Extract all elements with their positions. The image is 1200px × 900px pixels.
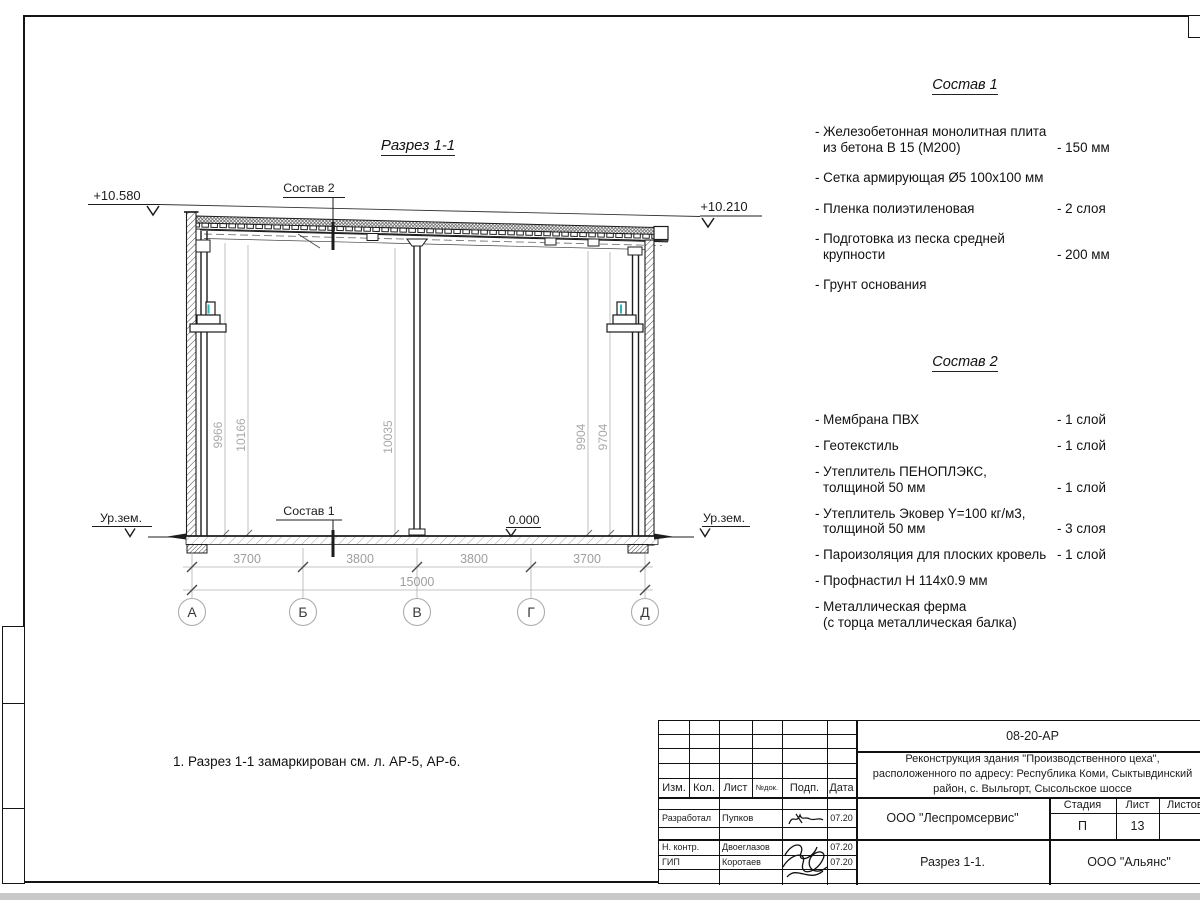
signature-razrabotal (786, 811, 826, 827)
stage-label: Стадия (1049, 797, 1116, 813)
row-role: ГИП (662, 855, 719, 869)
left-column-cap (196, 240, 210, 252)
svg-text:Ур.зем.: Ур.зем. (100, 511, 142, 525)
svg-text:Ур.зем.: Ур.зем. (703, 511, 745, 525)
col-header-ndok: №док. (752, 778, 782, 797)
row-name: Двоеглазов (722, 839, 782, 855)
row-date: 07.20 (827, 809, 856, 827)
sheet-number-label: Лист (1116, 797, 1159, 813)
drawing-title-wrap: Разрез 1-1 (378, 137, 458, 156)
dim-value: 3800 (460, 552, 488, 566)
height-dim-value: 10035 (381, 420, 395, 454)
col-header-kol: Кол. (689, 778, 719, 797)
sostav2-heading-wrap: Состав 2 (928, 353, 1002, 372)
col-header-podp: Подп. (782, 778, 827, 797)
sostav2-list: - Мембрана ПВХ - 1 слой - Геотекстиль - … (815, 412, 1120, 630)
ground-level-mark-right: Ур.зем. (700, 511, 750, 537)
doc-number: 08-20-АР (856, 721, 1200, 751)
list-item: - Геотекстиль - 1 слой (815, 438, 1120, 454)
dim-value: 3800 (346, 552, 374, 566)
sheet-number-value: 13 (1116, 813, 1159, 839)
leader-sostav1: Состав 1 (276, 504, 342, 557)
page-edge (0, 893, 1200, 900)
row-name: Коротаев (722, 855, 782, 869)
designer-org: ООО "Леспромсервис" (856, 797, 1049, 839)
col-header-data: Дата (827, 778, 856, 797)
ground-level-mark-left: Ур.зем. (92, 511, 152, 537)
list-item: - Утеплитель Эковер Y=100 кг/м3,толщиной… (815, 506, 1120, 537)
signature-gip (779, 837, 831, 885)
sheet-name: Разрез 1-1. (856, 839, 1049, 885)
axis-label: Б (298, 604, 307, 620)
height-dim-value: 10166 (234, 418, 248, 452)
middle-column-capital (407, 239, 427, 246)
height-dim-value: 9704 (596, 423, 610, 450)
purlin (367, 234, 378, 241)
list-item: - Пленка полиэтиленовая - 2 слоя (815, 201, 1120, 217)
svg-text:+10.580: +10.580 (93, 188, 140, 203)
row-role: Н. контр. (662, 839, 719, 855)
height-dim-value: 9966 (211, 421, 225, 448)
list-item: - Пароизоляция для плоских кровель - 1 с… (815, 547, 1120, 563)
elevation-mark-left: +10.580 (88, 188, 160, 215)
height-dimensions (225, 243, 610, 534)
floor-slab (186, 536, 658, 545)
row-name: Пупков (722, 809, 782, 827)
roof-top-datum-line (160, 205, 700, 217)
list-item: - Подготовка из песка среднейкрупности -… (815, 231, 1120, 262)
roof-assembly (196, 216, 668, 250)
sostav1-heading: Состав 1 (932, 77, 997, 95)
dim-total-value: 15000 (400, 575, 435, 589)
middle-column-base (409, 529, 425, 535)
svg-text:Состав 1: Состав 1 (283, 504, 334, 518)
right-column (633, 250, 639, 539)
drawing-sheet: 9966 10166 10035 9904 9704 (0, 0, 1200, 900)
right-column-cap (628, 247, 642, 255)
list-item: - Профнастил Н 114х0.9 мм (815, 573, 1120, 589)
foundation-left (187, 545, 207, 554)
svg-text:+10.210: +10.210 (700, 199, 747, 214)
ground-wedge-left (166, 534, 186, 540)
row-role: Разработал (662, 809, 719, 827)
axis-label: А (187, 604, 197, 620)
row-date: 07.20 (827, 839, 856, 855)
foundation-right (628, 545, 648, 554)
zero-level-mark: 0.000 (506, 513, 541, 536)
stage-value: П (1049, 813, 1116, 839)
col-header-list: Лист (719, 778, 752, 797)
svg-text:0.000: 0.000 (508, 513, 539, 527)
right-bracket (607, 302, 643, 332)
sostav1-list: - Железобетонная монолитная плитаиз бето… (815, 124, 1120, 293)
list-item: - Железобетонная монолитная плитаиз бето… (815, 124, 1120, 155)
col-header-izm: Изм. (659, 778, 689, 797)
left-wall (187, 212, 197, 540)
sheets-total-label: Листов (1159, 797, 1200, 813)
list-item: - Мембрана ПВХ - 1 слой (815, 412, 1120, 428)
title-block: Изм. Кол. Лист №док. Подп. Дата Разработ… (658, 720, 1200, 884)
purlin (588, 239, 599, 246)
middle-column (414, 245, 420, 532)
axis-label: В (412, 604, 421, 620)
elevation-mark-right: +10.210 (700, 199, 762, 227)
ground-wedge-right (654, 534, 674, 540)
drawing-title: Разрез 1-1 (381, 137, 455, 156)
list-item: - Утеплитель ПЕНОПЛЭКС,толщиной 50 мм - … (815, 464, 1120, 495)
list-item: - Металлическая ферма(с торца металличес… (815, 599, 1120, 630)
height-dim-value: 9904 (574, 423, 588, 450)
leader-sostav2: Состав 2 (283, 181, 345, 250)
list-item: - Грунт основания (815, 277, 1120, 293)
client-org: ООО "Альянс" (1049, 839, 1200, 885)
left-column (201, 231, 207, 537)
row-date: 07.20 (827, 855, 856, 869)
svg-text:Состав 2: Состав 2 (283, 181, 334, 195)
dim-value: 3700 (573, 552, 601, 566)
project-description: Реконструкция здания "Производственного … (858, 752, 1200, 797)
right-wall (645, 240, 654, 545)
purlin (545, 238, 556, 245)
sostav2-heading: Состав 2 (932, 354, 997, 372)
axis-label: Г (527, 604, 535, 620)
sostav1-heading-wrap: Состав 1 (928, 76, 1002, 95)
list-item: - Сетка армирующая Ø5 100х100 мм (815, 170, 1120, 186)
sheet-note: 1. Разрез 1-1 замаркирован см. л. АР-5, … (173, 754, 460, 769)
dim-value: 3700 (233, 552, 261, 566)
axis-label: Д (640, 604, 650, 620)
roof-edge-cap (654, 227, 668, 240)
